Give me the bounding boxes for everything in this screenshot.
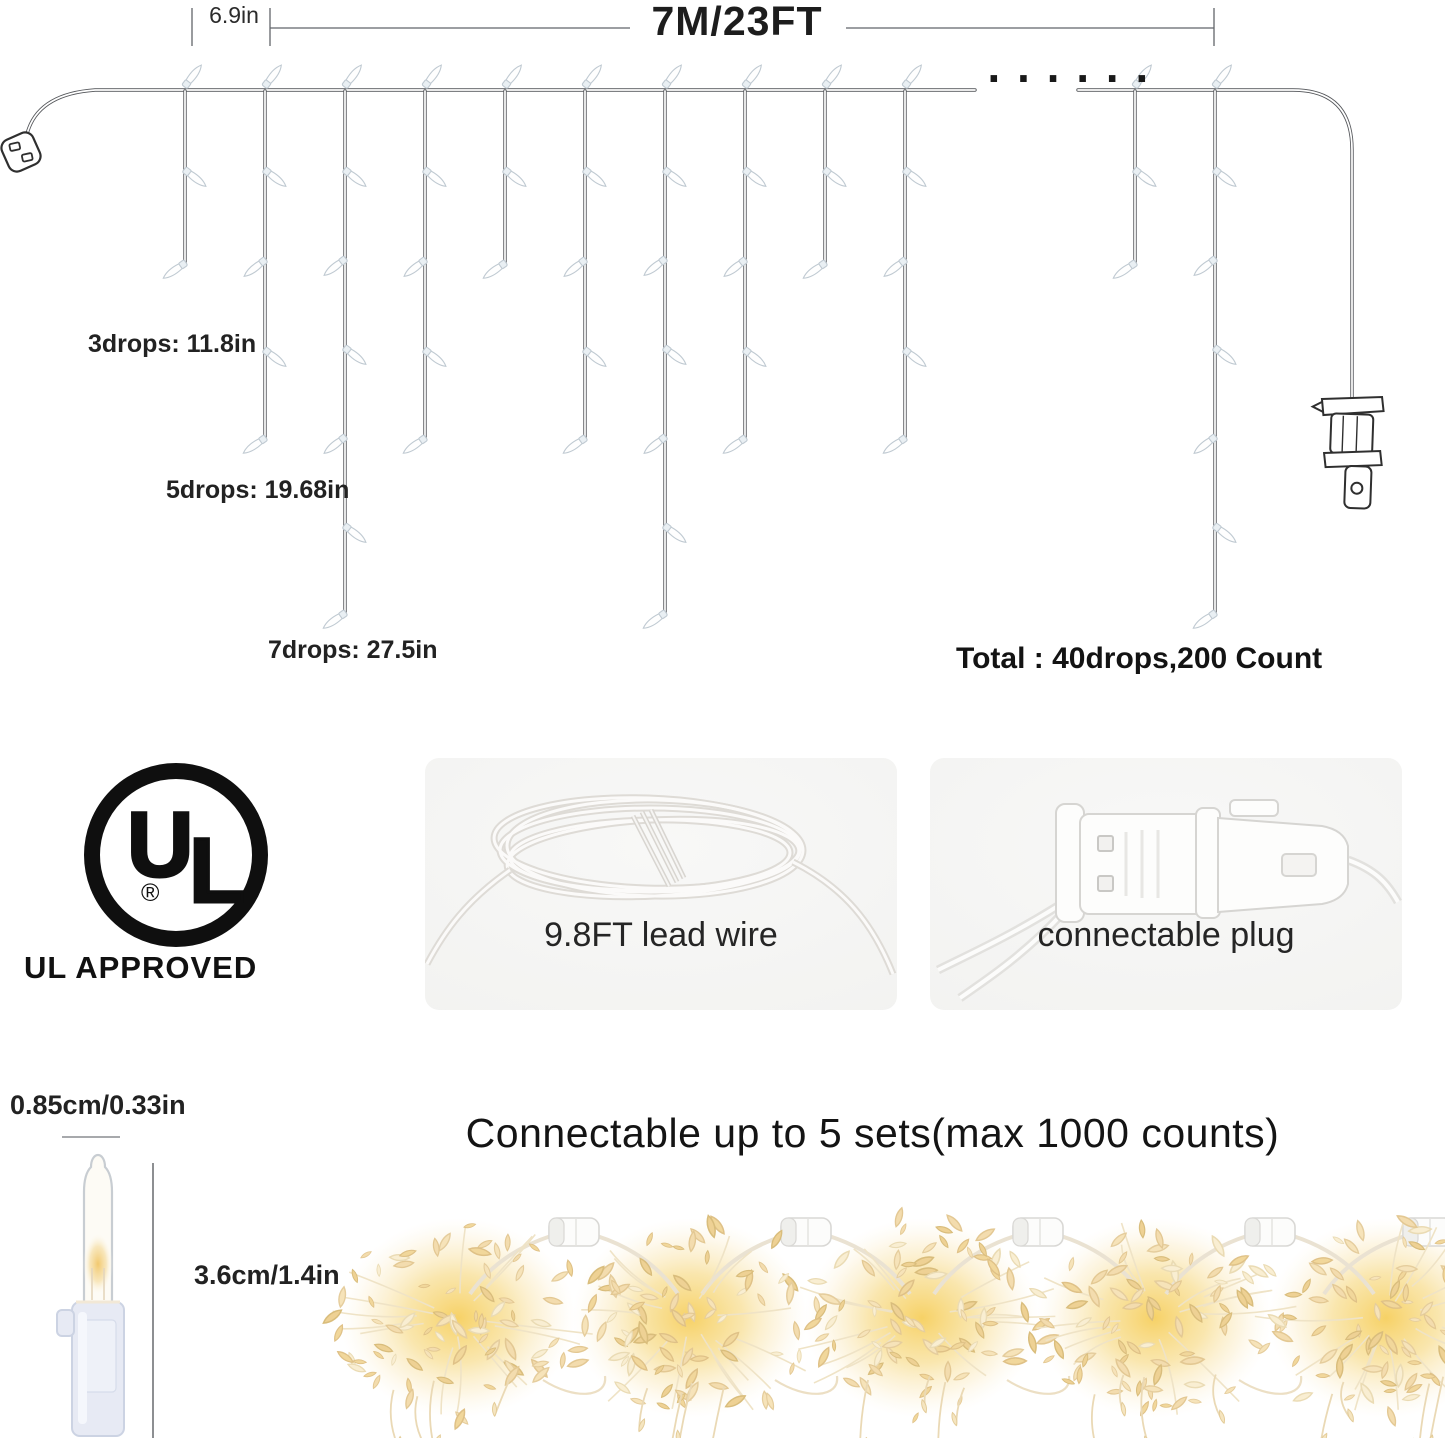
drop-label-5drops: 5drops: 19.68in — [166, 476, 349, 505]
ul-approved-label: UL APPROVED — [24, 950, 334, 986]
connected-light-clusters — [300, 1190, 1445, 1438]
lead-wire-photo — [425, 758, 897, 1010]
bulb-base — [57, 1302, 124, 1436]
feature-panel-connectable-plug: connectable plug — [930, 758, 1402, 1010]
drop-label-7drops: 7drops: 27.5in — [268, 636, 438, 665]
drop-label-3drops: 3drops: 11.8in — [88, 330, 256, 359]
connectable-plug-caption: connectable plug — [930, 916, 1402, 955]
feature-panel-lead-wire: 9.8FT lead wire — [425, 758, 897, 1010]
ul-logo: U L ® — [61, 755, 301, 955]
connectable-sets-heading: Connectable up to 5 sets(max 1000 counts… — [330, 1110, 1415, 1157]
ul-logo-letter-l: L — [189, 820, 245, 922]
bulb-diameter-label: 0.85cm/0.33in — [10, 1090, 186, 1121]
registered-trademark-icon: ® — [141, 879, 160, 907]
spacing-dimension-label: 6.9in — [196, 2, 272, 29]
bulb-diameter-measure-line — [62, 1136, 120, 1138]
total-length-label: 7M/23FT — [612, 0, 862, 45]
total-count-label: Total : 40drops,200 Count — [956, 642, 1322, 676]
bulb-closeup-photo — [28, 1148, 178, 1438]
lead-wire-caption: 9.8FT lead wire — [425, 916, 897, 955]
ul-logo-letter-u: U — [127, 794, 193, 896]
connectable-plug-photo — [930, 758, 1402, 1010]
continuation-dots: ...... — [980, 50, 1080, 90]
icicle-lights-infographic: 6.9in 7M/23FT ...... 3drops: 11.8in 5dro… — [0, 0, 1445, 1438]
